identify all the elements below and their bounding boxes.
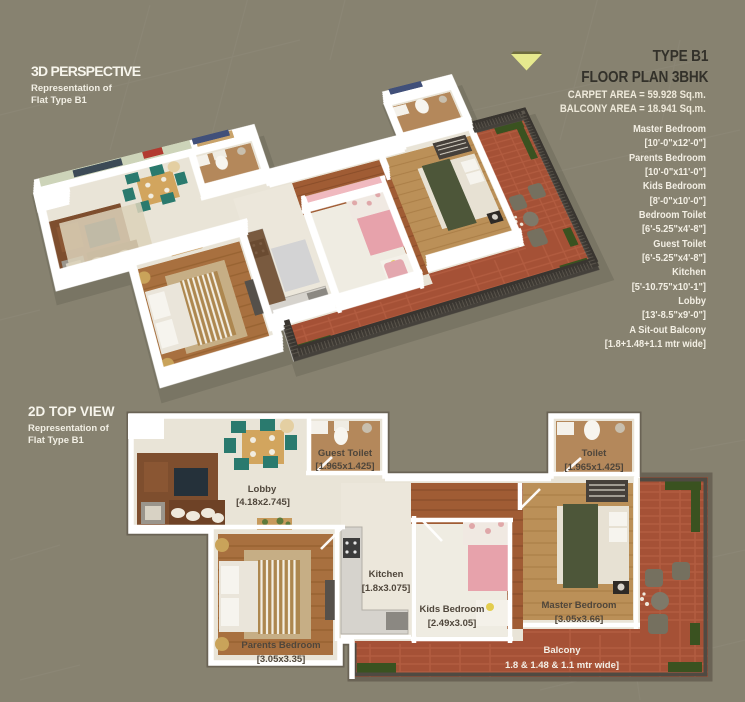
svg-text:[1.965x1.425]: [1.965x1.425] [315,461,374,472]
svg-text:[1.8x3.075]: [1.8x3.075] [362,583,411,594]
svg-text:Guest Toilet: Guest Toilet [318,448,373,459]
svg-text:Balcony: Balcony [544,645,582,656]
svg-text:[3.05x3.66]: [3.05x3.66] [555,614,604,625]
svg-text:Master Bedroom: Master Bedroom [542,600,617,611]
svg-text:Parents Bedroom: Parents Bedroom [241,640,320,651]
svg-text:Kids Bedroom: Kids Bedroom [420,604,485,615]
svg-text:Toilet: Toilet [582,448,607,459]
svg-text:1.8 & 1.48 & 1.1 mtr wide]: 1.8 & 1.48 & 1.1 mtr wide] [505,660,619,671]
svg-text:Lobby: Lobby [248,484,277,495]
svg-text:[4.18x2.745]: [4.18x2.745] [236,497,290,508]
svg-text:[3.05x3.35]: [3.05x3.35] [257,654,306,665]
svg-text:Kitchen: Kitchen [369,569,404,580]
svg-text:[2.49x3.05]: [2.49x3.05] [428,618,477,629]
svg-text:[1.965x1.425]: [1.965x1.425] [564,462,623,473]
